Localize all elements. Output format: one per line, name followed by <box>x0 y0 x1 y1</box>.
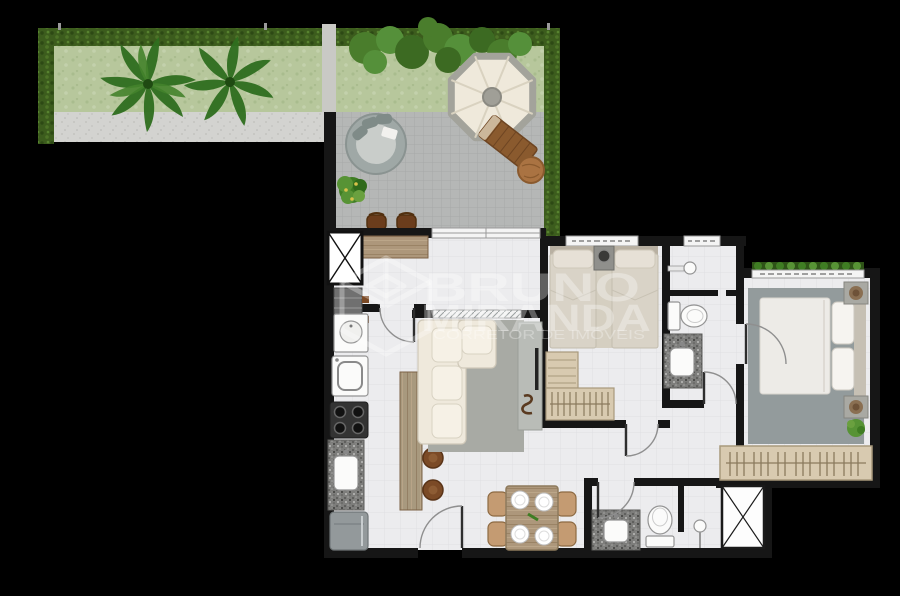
outdoor-counter-wood <box>356 236 428 258</box>
plant-icon <box>847 419 865 437</box>
washing-machine-icon <box>332 356 368 396</box>
vanity-sink <box>604 520 628 542</box>
island-stool-icon <box>423 480 443 500</box>
garden-dividing-wall <box>322 24 336 112</box>
hedge-right-texture <box>544 28 560 240</box>
outdoor-stool-icon <box>367 213 386 230</box>
watermark-tagline: CORRETOR DE IMÓVEIS <box>433 327 645 342</box>
wall-bedroom1-bottom-b <box>658 420 670 428</box>
wall-bathroom1-shower-divider-a <box>666 290 718 296</box>
outdoor-stool-icon <box>397 213 416 230</box>
floor-plan-drawing: BRUNO MIRANDA CORRETOR DE IMÓVEIS <box>0 0 900 596</box>
kitchen-faucet-icon <box>344 450 349 455</box>
wall-bathroom1-shower-divider-b <box>726 290 738 296</box>
toilet-icon <box>668 302 707 330</box>
toilet-icon <box>646 506 674 547</box>
wall-bathroom1-master-a <box>736 236 744 324</box>
concrete-path-texture <box>54 112 324 142</box>
wall-dining-bathroom2 <box>584 478 592 556</box>
kitchen-sink <box>334 456 358 490</box>
wall-bedroom1-bottom-a <box>540 420 626 428</box>
double-bed-icon <box>760 292 866 396</box>
pouf-table-icon <box>518 157 544 183</box>
master-window-planter <box>752 262 864 270</box>
wall-bathroom2-shower-divider <box>678 486 684 532</box>
hedge-left-texture <box>38 28 54 144</box>
stove-icon <box>330 402 368 438</box>
round-daybed-icon <box>346 113 406 174</box>
wall-bathroom1-bottom <box>662 400 704 408</box>
shower-glass-box <box>722 486 764 548</box>
pillow <box>832 348 854 390</box>
vanity-sink <box>670 348 694 376</box>
headboard <box>854 292 866 396</box>
faucet-icon <box>680 342 685 347</box>
pillow <box>832 302 854 344</box>
wall-terrace-left <box>324 112 336 236</box>
tv-icon <box>535 348 539 390</box>
wall-bathroom2-top-a <box>584 478 598 486</box>
wardrobe-master <box>720 446 872 480</box>
floor-plan-canvas: BRUNO MIRANDA CORRETOR DE IMÓVEIS <box>0 0 900 596</box>
refrigerator-icon <box>330 512 368 550</box>
nightstand-icon <box>844 396 868 418</box>
nightstand-icon <box>844 282 868 304</box>
